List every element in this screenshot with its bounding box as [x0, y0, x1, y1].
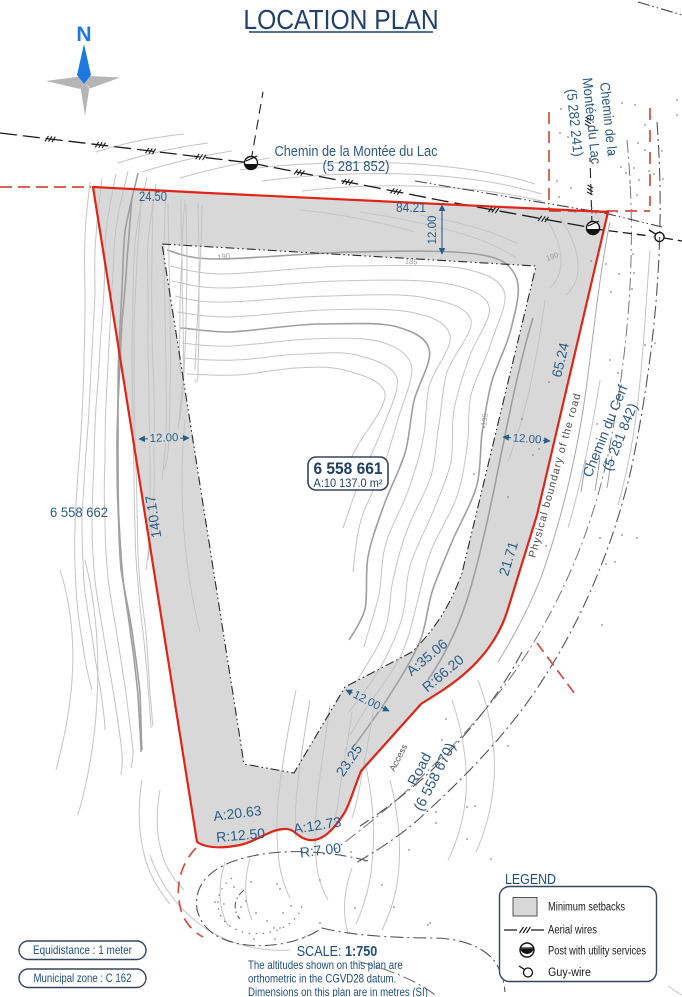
- svg-text:185: 185: [405, 257, 418, 267]
- svg-text:Chemin de la Montée du Lac: Chemin de la Montée du Lac: [275, 144, 438, 160]
- svg-text:The altitudes shown on this pl: The altitudes shown on this plan are: [248, 959, 403, 972]
- svg-text:(5 281 852): (5 281 852): [323, 159, 390, 175]
- svg-text:12.00: 12.00: [512, 433, 542, 447]
- svg-text:LOCATION PLAN: LOCATION PLAN: [243, 4, 438, 36]
- svg-text:190: 190: [217, 251, 231, 262]
- svg-text:N: N: [76, 23, 91, 46]
- svg-text:Guy-wire: Guy-wire: [548, 967, 591, 979]
- svg-text:24.50: 24.50: [139, 188, 167, 204]
- svg-text:Post with utility services: Post with utility services: [548, 946, 646, 958]
- svg-text:Municipal zone : C 162: Municipal zone : C 162: [34, 971, 132, 985]
- svg-text:LEGEND: LEGEND: [505, 871, 556, 888]
- svg-text:6 558 661: 6 558 661: [314, 460, 383, 478]
- svg-text:A:10 137.0 m²: A:10 137.0 m²: [314, 478, 383, 490]
- svg-text:SCALE: 1:750: SCALE: 1:750: [297, 942, 378, 959]
- svg-text:84.21: 84.21: [396, 199, 426, 215]
- svg-text:12.00: 12.00: [427, 216, 439, 245]
- svg-text:12.00: 12.00: [149, 432, 178, 445]
- svg-text:6 558 662: 6 558 662: [50, 504, 108, 520]
- svg-text:195: 195: [479, 413, 490, 427]
- svg-text:Dimensions on this plan are in: Dimensions on this plan are in metres (S…: [248, 986, 428, 997]
- svg-text:Minimum setbacks: Minimum setbacks: [548, 902, 625, 914]
- svg-text:orthometric in the CGVD28 datu: orthometric in the CGVD28 datum.: [248, 972, 396, 985]
- svg-text:Equidistance : 1 meter: Equidistance : 1 meter: [33, 943, 132, 957]
- svg-text:Aerial wires: Aerial wires: [548, 925, 597, 937]
